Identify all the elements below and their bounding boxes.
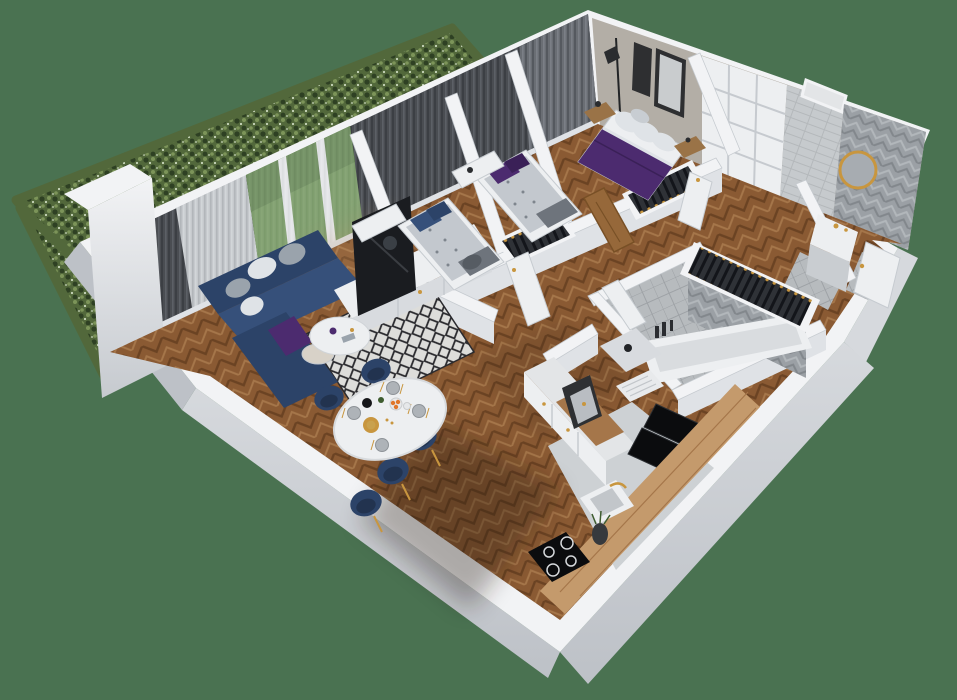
knob	[542, 402, 546, 406]
black-kettle	[362, 398, 372, 408]
door-handle	[860, 264, 864, 268]
decor-vase	[330, 328, 337, 335]
knob	[418, 290, 422, 294]
picture-art	[658, 54, 682, 112]
bottle	[662, 322, 666, 336]
candle	[386, 419, 389, 422]
knob	[566, 428, 570, 432]
charger-inner	[367, 421, 376, 430]
desk-chair	[383, 236, 397, 250]
plate	[376, 439, 389, 452]
carafe	[404, 403, 411, 410]
bottle	[670, 320, 673, 331]
orange	[396, 400, 400, 404]
plate	[387, 382, 400, 395]
cactus	[378, 397, 384, 403]
orange	[391, 401, 395, 405]
floor-plan-stage	[0, 0, 957, 700]
pillar-face	[88, 178, 166, 398]
round-coffee-table	[310, 317, 370, 355]
storage-item	[624, 344, 632, 352]
floor-plan-render	[0, 0, 957, 700]
door-handle	[696, 178, 700, 182]
round-mirror	[840, 152, 876, 188]
table-lamp	[595, 101, 601, 107]
decor-cup	[350, 328, 354, 332]
plate	[348, 407, 361, 420]
picture-frame-small	[632, 42, 652, 97]
candle	[391, 422, 394, 425]
orange	[394, 405, 398, 409]
bottle	[655, 326, 659, 338]
door-handle	[512, 268, 516, 272]
gold-faucet	[834, 224, 839, 229]
coffee-machine-dial	[582, 402, 586, 406]
gold-tap	[844, 228, 848, 232]
desk-lamp	[467, 167, 473, 173]
plate	[413, 405, 426, 418]
table-lamp	[686, 138, 691, 143]
